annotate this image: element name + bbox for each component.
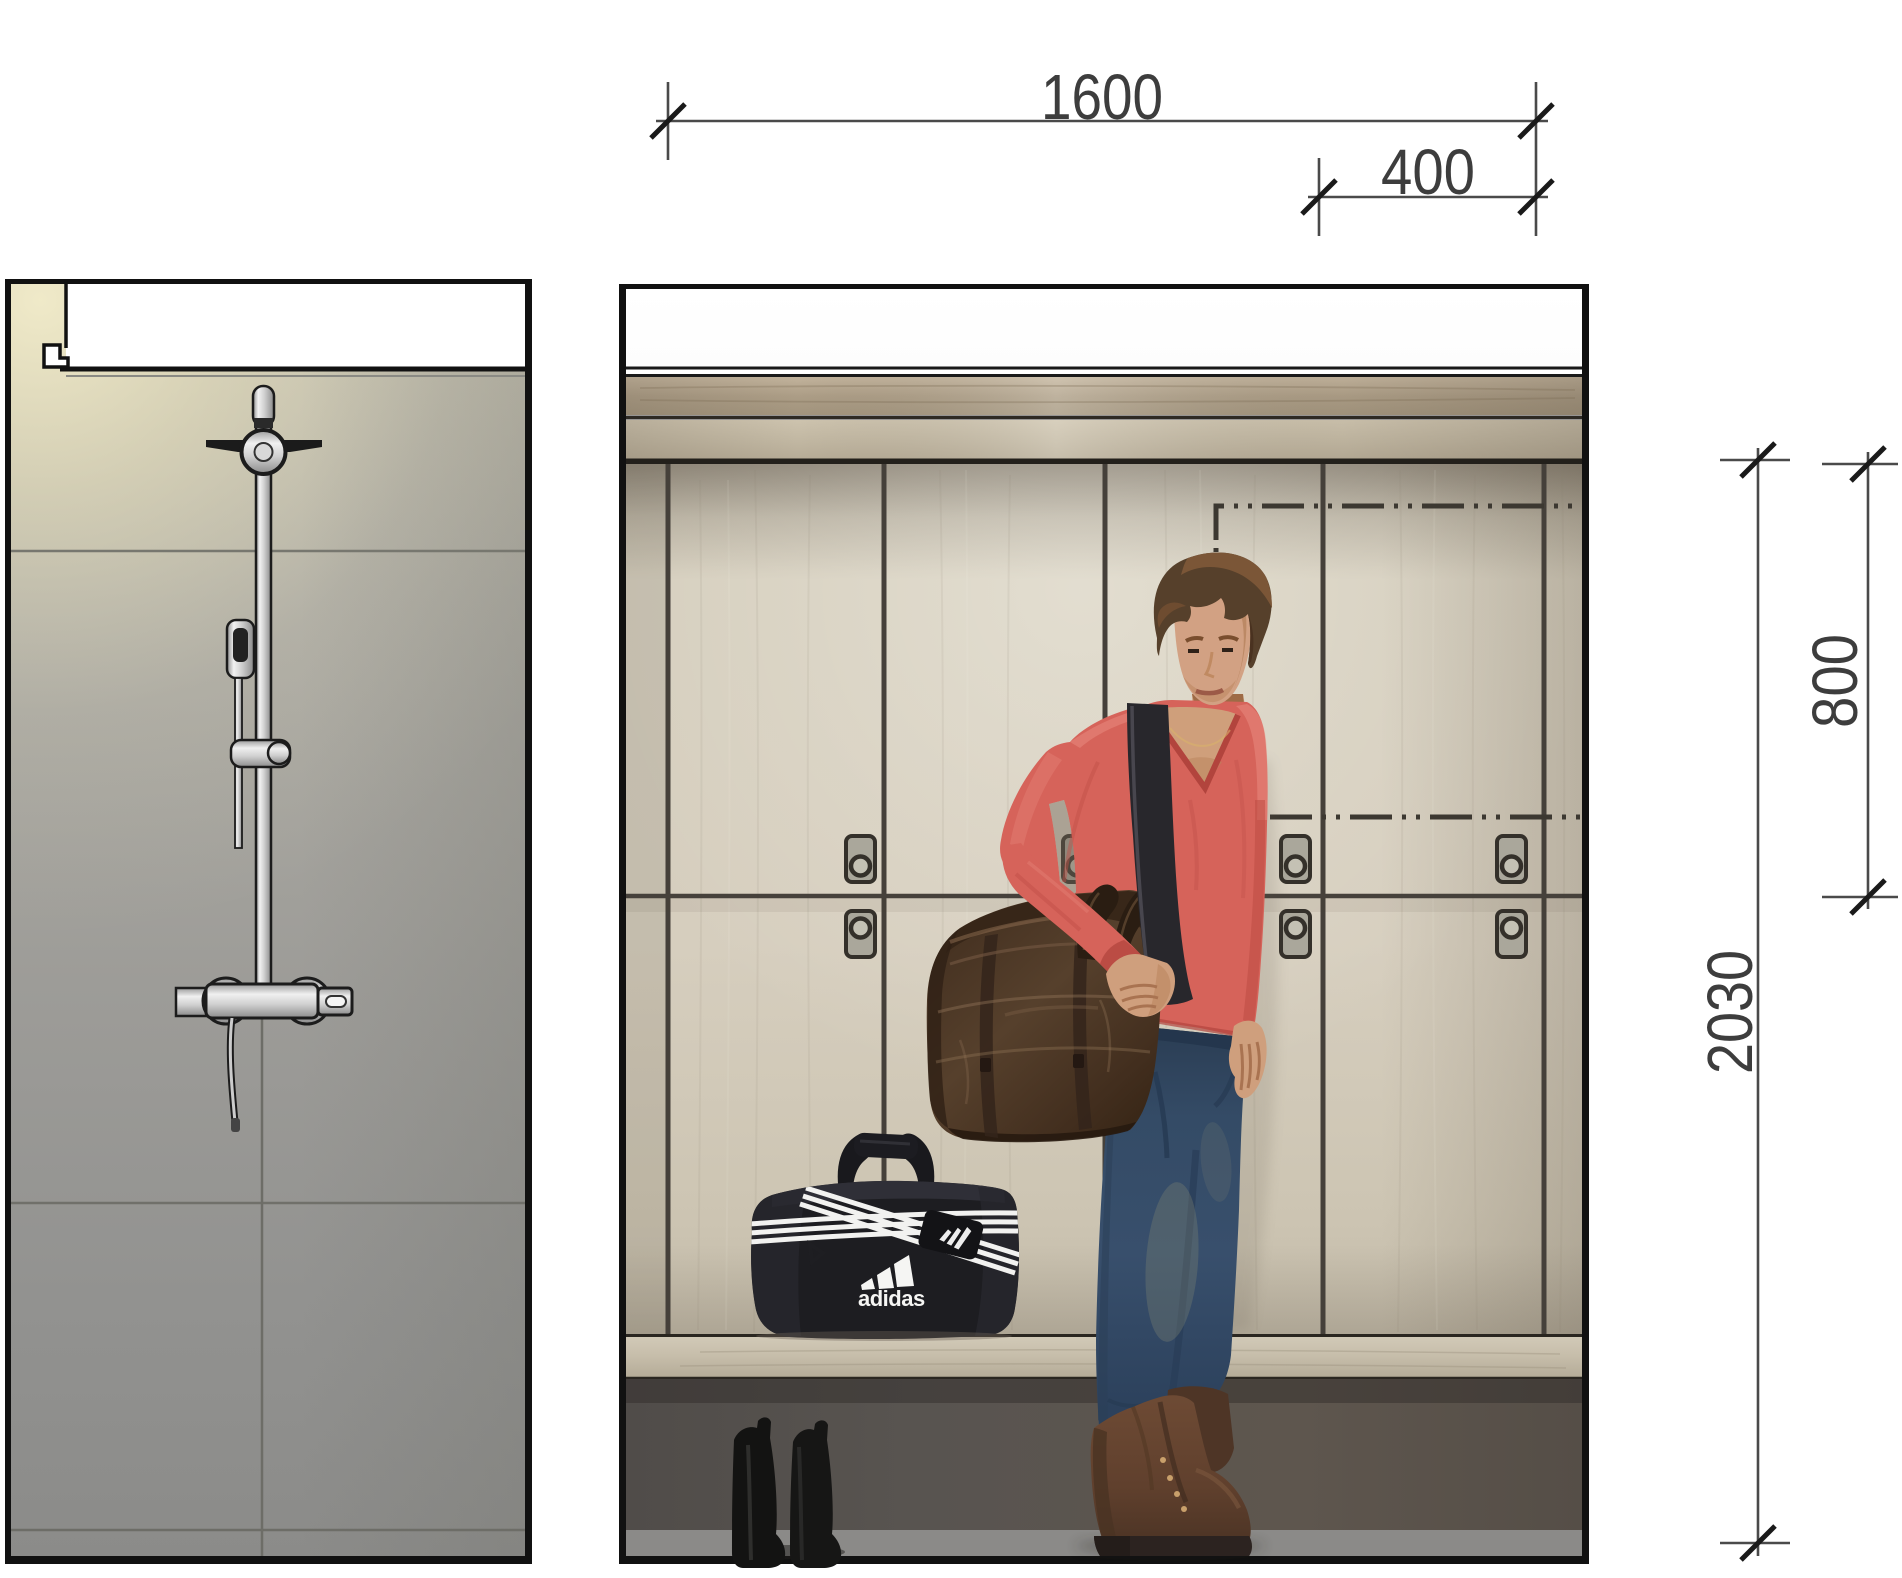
svg-text:800: 800 [1799, 634, 1871, 728]
svg-text:2030: 2030 [1694, 950, 1766, 1074]
svg-text:1600: 1600 [1041, 61, 1163, 133]
svg-text:400: 400 [1381, 136, 1475, 208]
svg-text:adidas: adidas [858, 1286, 925, 1311]
